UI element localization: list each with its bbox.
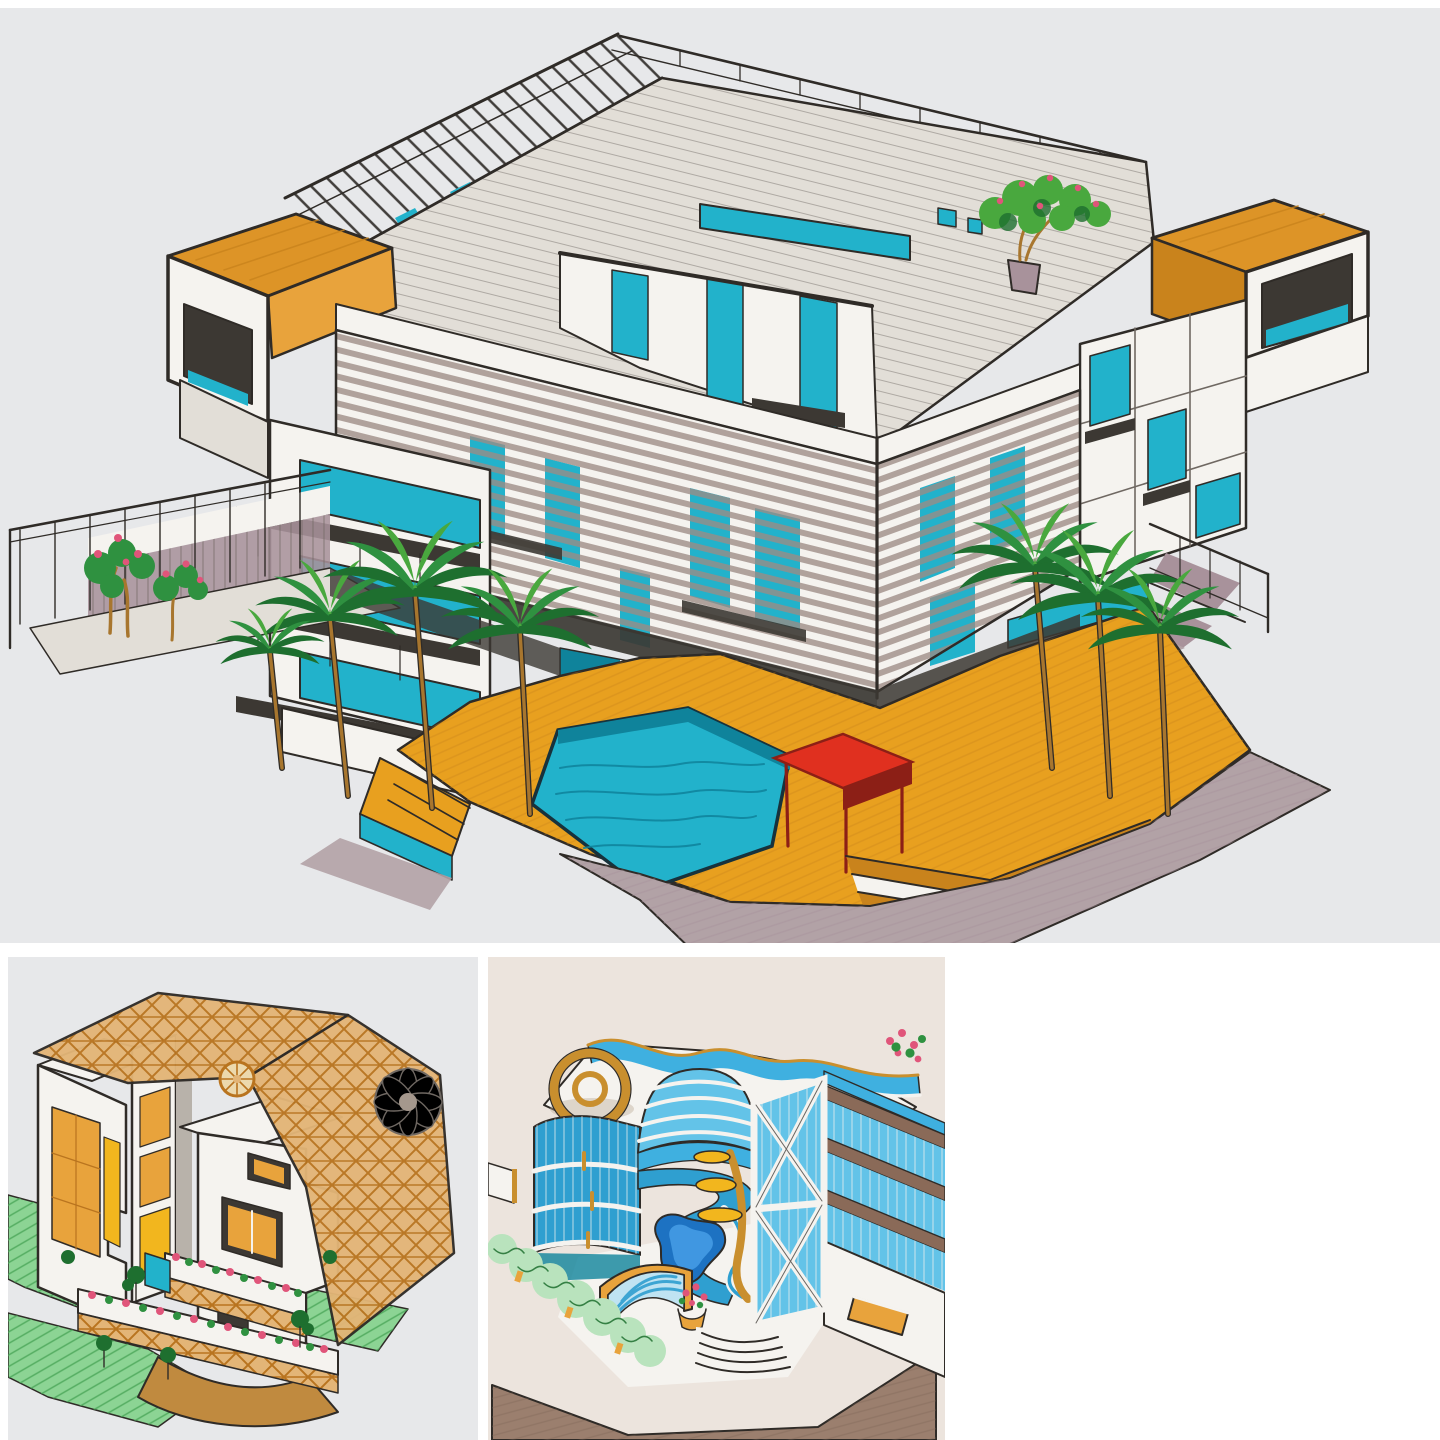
skylight-square	[938, 208, 956, 227]
rosette-ornament	[374, 1068, 442, 1136]
sketch-collage	[0, 0, 1440, 1440]
lattice-villa-drawing	[8, 957, 478, 1440]
skylight-square	[968, 218, 982, 234]
wheel-ornament	[220, 1062, 254, 1096]
panel-lattice-villa-sketch	[8, 957, 478, 1440]
panel-main-building-sketch	[0, 8, 1440, 943]
curved-building-drawing	[488, 957, 945, 1440]
right-floors	[824, 1085, 945, 1377]
panel-curved-building-sketch	[488, 957, 945, 1440]
main-building-drawing	[0, 8, 1440, 943]
